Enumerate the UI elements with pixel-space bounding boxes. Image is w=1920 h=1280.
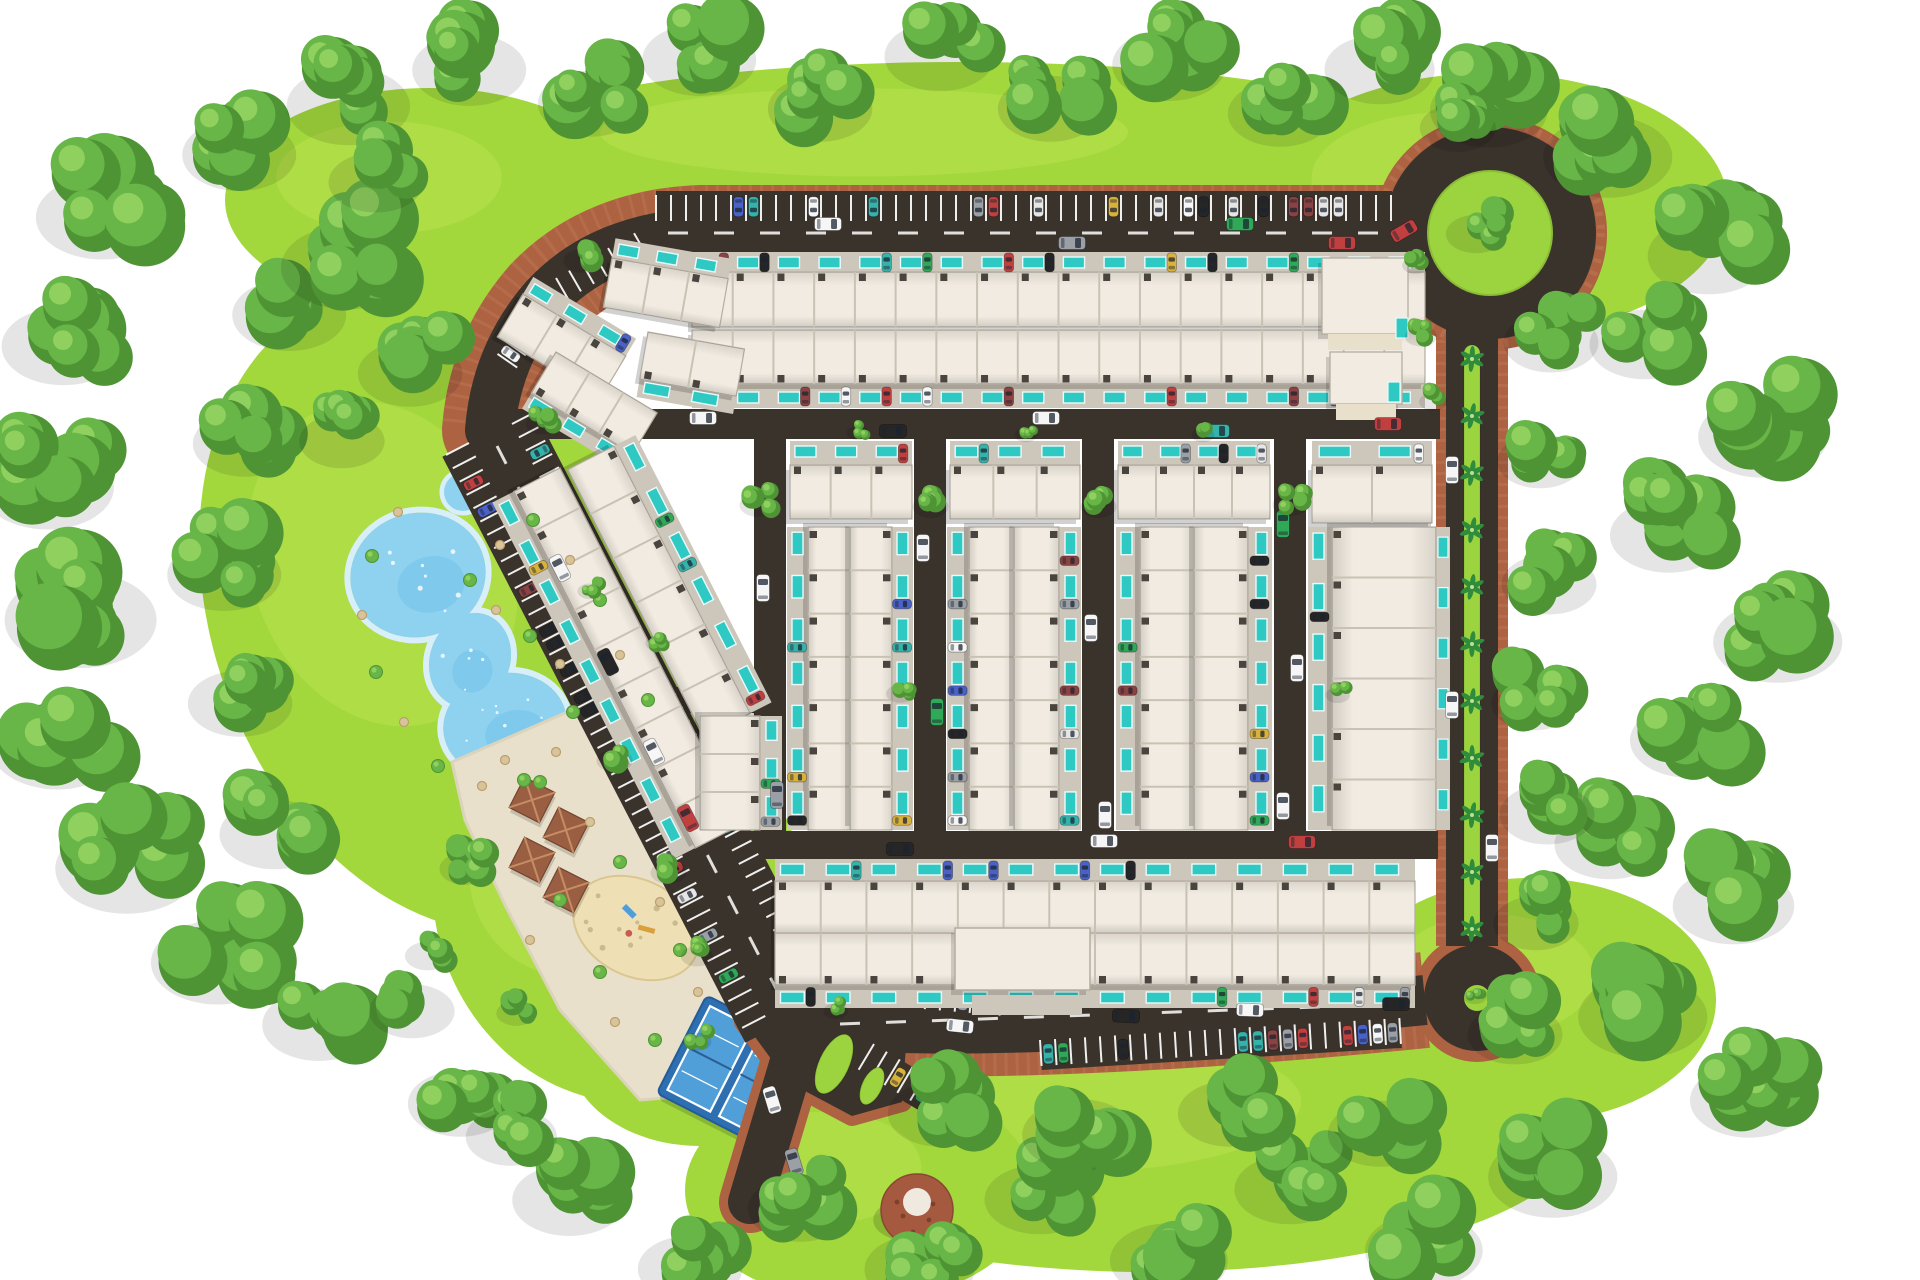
bush bbox=[527, 514, 540, 527]
car bbox=[771, 782, 784, 809]
sun-umbrella bbox=[492, 606, 501, 615]
sun-umbrella bbox=[556, 660, 565, 669]
bush bbox=[432, 760, 445, 773]
windshield bbox=[1320, 208, 1327, 212]
entry-court bbox=[810, 791, 818, 798]
water-sparkle bbox=[391, 561, 395, 565]
entry-court bbox=[692, 274, 700, 283]
windshield bbox=[1402, 992, 1409, 996]
bush-highlight bbox=[371, 667, 376, 672]
car bbox=[1250, 816, 1269, 826]
windshield bbox=[1356, 992, 1363, 996]
entry-court bbox=[1145, 883, 1152, 891]
water-sparkle bbox=[468, 657, 471, 660]
car bbox=[757, 575, 770, 602]
windshield bbox=[843, 391, 850, 395]
entry-court bbox=[810, 661, 818, 668]
entry-court bbox=[1008, 883, 1015, 891]
car bbox=[1375, 418, 1402, 431]
car bbox=[1289, 197, 1299, 217]
water-sparkle bbox=[496, 711, 499, 714]
house-row bbox=[947, 523, 1014, 830]
windshield bbox=[772, 786, 782, 792]
car bbox=[761, 817, 780, 827]
sun-umbrella bbox=[694, 988, 703, 997]
entry-court bbox=[810, 704, 818, 711]
windshield bbox=[1260, 731, 1264, 738]
bush-highlight bbox=[465, 575, 470, 580]
pool bbox=[1055, 864, 1079, 875]
water-sparkle bbox=[464, 689, 466, 691]
pool bbox=[1256, 619, 1267, 642]
pool bbox=[952, 792, 963, 815]
car bbox=[1033, 412, 1060, 425]
entry-court bbox=[1236, 467, 1243, 475]
pool bbox=[766, 721, 777, 741]
windshield bbox=[945, 865, 952, 869]
windshield bbox=[1070, 687, 1074, 694]
windshield bbox=[990, 208, 997, 212]
entry-court bbox=[1103, 375, 1110, 383]
car bbox=[690, 412, 717, 425]
entry-court bbox=[1142, 574, 1150, 581]
pool bbox=[952, 619, 963, 642]
bush-highlight bbox=[555, 895, 560, 900]
car bbox=[1085, 615, 1098, 642]
entry-court bbox=[1334, 531, 1342, 538]
car bbox=[1289, 387, 1299, 406]
pool bbox=[900, 392, 921, 403]
entry-court bbox=[1328, 883, 1335, 891]
car bbox=[1297, 1028, 1308, 1049]
entry-court bbox=[883, 791, 891, 798]
entry-court bbox=[692, 380, 700, 389]
car bbox=[931, 699, 944, 726]
entry-court bbox=[1142, 791, 1150, 798]
entry-court bbox=[1334, 582, 1342, 589]
car bbox=[893, 599, 912, 609]
pool bbox=[952, 749, 963, 772]
masterplan-svg bbox=[0, 0, 1920, 1280]
entry-court bbox=[1099, 883, 1106, 891]
windshield bbox=[1045, 1048, 1052, 1053]
car bbox=[880, 425, 907, 438]
entry-court bbox=[810, 618, 818, 625]
bush bbox=[567, 706, 580, 719]
entry-court bbox=[1282, 976, 1289, 984]
water-sparkle bbox=[421, 564, 424, 567]
sun-umbrella bbox=[586, 818, 595, 827]
bush bbox=[370, 666, 383, 679]
entry-court bbox=[900, 375, 907, 383]
pool bbox=[860, 392, 881, 403]
windshield bbox=[1086, 619, 1096, 625]
windshield bbox=[981, 448, 988, 452]
windshield bbox=[883, 257, 890, 261]
sun-umbrella bbox=[496, 541, 505, 550]
windshield bbox=[1127, 865, 1134, 869]
water-sparkle bbox=[451, 549, 456, 554]
entry-court bbox=[751, 796, 759, 803]
car bbox=[1181, 444, 1191, 463]
bush bbox=[554, 894, 567, 907]
car bbox=[1099, 802, 1112, 829]
entry-court bbox=[1022, 375, 1029, 383]
pool bbox=[1313, 584, 1324, 610]
windshield bbox=[1209, 257, 1216, 261]
pool bbox=[952, 532, 963, 555]
windshield bbox=[958, 774, 962, 781]
pool bbox=[941, 392, 962, 403]
car bbox=[1199, 197, 1209, 217]
car bbox=[1291, 655, 1304, 682]
entry-court bbox=[1307, 375, 1314, 383]
entry-court bbox=[810, 574, 818, 581]
entry-court bbox=[825, 976, 832, 984]
entry-court bbox=[1142, 618, 1150, 625]
pool bbox=[780, 864, 804, 875]
windshield bbox=[1110, 208, 1117, 212]
pool bbox=[897, 705, 908, 728]
car bbox=[893, 643, 912, 653]
entry-court bbox=[1239, 704, 1247, 711]
windshield bbox=[958, 817, 962, 824]
entry-court bbox=[1050, 704, 1058, 711]
pool bbox=[792, 792, 803, 815]
car bbox=[815, 218, 842, 231]
bush bbox=[524, 630, 537, 643]
windshield bbox=[1107, 836, 1113, 846]
entry-court bbox=[1041, 467, 1048, 475]
water-sparkle bbox=[465, 739, 467, 741]
pool bbox=[1329, 864, 1353, 875]
pool bbox=[1319, 446, 1350, 457]
pool bbox=[1104, 257, 1125, 268]
pool bbox=[738, 257, 759, 268]
car bbox=[1329, 237, 1356, 250]
windshield bbox=[903, 817, 907, 824]
windshield bbox=[1243, 219, 1249, 229]
pool bbox=[1063, 392, 1084, 403]
car bbox=[1309, 987, 1319, 1006]
entry-court bbox=[916, 883, 923, 891]
pool bbox=[872, 992, 896, 1003]
car bbox=[989, 861, 999, 880]
sun-umbrella bbox=[478, 782, 487, 791]
entry-court bbox=[1050, 791, 1058, 798]
pool bbox=[1065, 619, 1076, 642]
pool bbox=[1121, 705, 1132, 728]
windshield bbox=[1447, 461, 1457, 467]
pool bbox=[1065, 575, 1076, 598]
pool bbox=[1023, 257, 1044, 268]
pool bbox=[876, 446, 897, 457]
house-row bbox=[786, 441, 912, 524]
pool bbox=[900, 257, 921, 268]
pool bbox=[792, 662, 803, 685]
pool bbox=[982, 392, 1003, 403]
car bbox=[806, 987, 816, 1006]
entry-court bbox=[883, 661, 891, 668]
car bbox=[1414, 444, 1424, 463]
pool bbox=[1192, 864, 1216, 875]
car bbox=[1118, 1039, 1129, 1060]
entry-court bbox=[1063, 274, 1070, 282]
entry-court bbox=[1053, 883, 1060, 891]
pool bbox=[872, 864, 896, 875]
windshield bbox=[1219, 426, 1225, 436]
pool bbox=[860, 257, 881, 268]
windshield bbox=[1006, 257, 1013, 261]
pool bbox=[952, 705, 963, 728]
pool bbox=[766, 759, 777, 779]
sun-umbrella bbox=[501, 756, 510, 765]
car bbox=[946, 1018, 974, 1034]
entry-court bbox=[1236, 883, 1243, 891]
sun-umbrella bbox=[552, 748, 561, 757]
car bbox=[1217, 987, 1227, 1006]
entry-court bbox=[751, 758, 759, 765]
car bbox=[1060, 686, 1079, 696]
pool bbox=[1065, 749, 1076, 772]
entry-court bbox=[1103, 274, 1110, 282]
car bbox=[869, 197, 879, 217]
windshield bbox=[771, 818, 775, 825]
pool bbox=[1313, 533, 1324, 559]
pool bbox=[1256, 662, 1267, 685]
windshield bbox=[1447, 696, 1457, 702]
bush-highlight bbox=[367, 551, 372, 556]
entry-court bbox=[1160, 467, 1167, 475]
entry-court bbox=[751, 720, 759, 727]
windshield bbox=[1374, 1028, 1381, 1033]
entry-court bbox=[1190, 883, 1197, 891]
windshield bbox=[1260, 601, 1264, 608]
entry-court bbox=[883, 531, 891, 538]
car bbox=[948, 729, 967, 739]
entry-court bbox=[859, 274, 866, 282]
water-sparkle bbox=[481, 658, 484, 661]
pool bbox=[1238, 992, 1262, 1003]
house-row bbox=[1116, 523, 1194, 830]
entry-court bbox=[1328, 976, 1335, 984]
car bbox=[1060, 556, 1079, 566]
car bbox=[1250, 729, 1269, 739]
entry-court bbox=[1050, 531, 1058, 538]
car bbox=[1310, 612, 1329, 622]
pool bbox=[1226, 392, 1247, 403]
house-row bbox=[845, 523, 913, 830]
windshield bbox=[1155, 208, 1162, 212]
pool bbox=[792, 619, 803, 642]
car bbox=[1334, 197, 1344, 217]
windshield bbox=[1391, 419, 1397, 429]
windshield bbox=[1260, 817, 1264, 824]
car bbox=[1184, 197, 1194, 217]
windshield bbox=[1219, 992, 1226, 996]
windshield bbox=[807, 992, 814, 996]
water-sparkle bbox=[441, 654, 445, 658]
sun-umbrella bbox=[566, 556, 575, 565]
bush-highlight bbox=[615, 857, 620, 862]
pool bbox=[1226, 257, 1247, 268]
pool bbox=[1438, 638, 1448, 658]
car bbox=[1342, 1025, 1353, 1046]
pool bbox=[1042, 446, 1065, 457]
pool bbox=[1121, 619, 1132, 642]
windshield bbox=[1119, 1044, 1126, 1049]
bush-highlight bbox=[568, 707, 573, 712]
windshield bbox=[1344, 1030, 1351, 1035]
pool bbox=[1313, 685, 1324, 711]
entry-court bbox=[971, 618, 979, 625]
pool bbox=[1121, 662, 1132, 685]
entry-court bbox=[653, 267, 661, 276]
pool bbox=[826, 864, 850, 875]
windshield bbox=[1310, 992, 1317, 996]
pool bbox=[1121, 575, 1132, 598]
bush bbox=[614, 856, 627, 869]
water-sparkle bbox=[503, 724, 507, 728]
entry-court bbox=[1266, 375, 1273, 383]
car bbox=[1060, 816, 1079, 826]
pool bbox=[1308, 392, 1329, 403]
pool bbox=[1104, 392, 1125, 403]
sun-umbrella bbox=[400, 718, 409, 727]
pool bbox=[795, 446, 816, 457]
entry-court bbox=[875, 467, 882, 475]
entry-court bbox=[1142, 661, 1150, 668]
pool bbox=[819, 392, 840, 403]
entry-court bbox=[1185, 375, 1192, 383]
bush-highlight bbox=[535, 777, 540, 782]
pool bbox=[1256, 705, 1267, 728]
windshield bbox=[1299, 1033, 1306, 1038]
windshield bbox=[1258, 448, 1265, 452]
bush bbox=[518, 774, 531, 787]
clubhouse-forecourt bbox=[972, 995, 1082, 1015]
car bbox=[979, 444, 989, 463]
car bbox=[1154, 197, 1164, 217]
entry-court bbox=[883, 574, 891, 581]
pool bbox=[792, 532, 803, 555]
car bbox=[852, 861, 862, 880]
water-sparkle bbox=[444, 610, 447, 613]
house-row bbox=[1114, 441, 1270, 524]
windshield bbox=[958, 644, 962, 651]
entry-court bbox=[818, 375, 825, 383]
entry-court bbox=[870, 976, 877, 984]
pool bbox=[1065, 662, 1076, 685]
pool bbox=[897, 749, 908, 772]
entry-court bbox=[916, 976, 923, 984]
pool bbox=[1388, 382, 1400, 402]
car bbox=[1289, 253, 1299, 272]
car bbox=[1250, 772, 1269, 782]
pool bbox=[918, 992, 942, 1003]
car bbox=[734, 197, 744, 217]
pool bbox=[897, 662, 908, 685]
water-sparkle bbox=[540, 717, 542, 719]
pool bbox=[778, 392, 799, 403]
pool bbox=[1065, 792, 1076, 815]
windshield bbox=[1269, 1034, 1276, 1039]
windshield bbox=[706, 413, 712, 423]
car bbox=[1109, 197, 1119, 217]
car bbox=[788, 772, 807, 782]
car bbox=[1289, 836, 1316, 849]
car bbox=[1277, 793, 1290, 820]
entry-court bbox=[1373, 883, 1380, 891]
entry-court bbox=[835, 467, 842, 475]
windshield bbox=[1049, 413, 1055, 423]
car bbox=[1045, 253, 1055, 272]
car bbox=[1319, 197, 1329, 217]
water-sparkle bbox=[418, 586, 423, 591]
car bbox=[1004, 253, 1014, 272]
car bbox=[1043, 1044, 1054, 1065]
house-row bbox=[695, 712, 782, 830]
windshield bbox=[798, 817, 802, 824]
pool bbox=[999, 446, 1022, 457]
entry-court bbox=[1239, 618, 1247, 625]
water-sparkle bbox=[469, 648, 473, 652]
pool bbox=[1237, 446, 1257, 457]
windshield bbox=[1416, 448, 1423, 452]
entry-court bbox=[1099, 976, 1106, 984]
entry-court bbox=[1307, 274, 1314, 282]
car bbox=[1080, 861, 1090, 880]
windshield bbox=[1335, 208, 1342, 212]
car bbox=[882, 387, 892, 406]
car bbox=[1112, 1009, 1140, 1023]
house-row bbox=[787, 523, 850, 830]
car bbox=[749, 197, 759, 217]
parking-pad bbox=[656, 191, 1392, 221]
entry-court bbox=[1334, 784, 1342, 791]
car bbox=[948, 686, 967, 696]
pool bbox=[1329, 992, 1353, 1003]
windshield bbox=[1060, 1047, 1067, 1052]
villa bbox=[1322, 258, 1408, 334]
car bbox=[1282, 1029, 1293, 1050]
pool bbox=[1238, 864, 1262, 875]
windshield bbox=[990, 865, 997, 869]
car bbox=[760, 253, 770, 272]
bush bbox=[594, 966, 607, 979]
windshield bbox=[958, 601, 962, 608]
windshield bbox=[870, 208, 877, 212]
pool bbox=[1146, 864, 1170, 875]
bush-highlight bbox=[433, 761, 438, 766]
entry-court bbox=[940, 375, 947, 383]
entry-court bbox=[870, 883, 877, 891]
car bbox=[898, 444, 908, 463]
entry-court bbox=[614, 260, 622, 269]
pool bbox=[1100, 864, 1124, 875]
entry-court bbox=[971, 574, 979, 581]
pool bbox=[1186, 257, 1207, 268]
car bbox=[1446, 692, 1459, 719]
entry-court bbox=[883, 747, 891, 754]
pool bbox=[1146, 992, 1170, 1003]
entry-court bbox=[777, 375, 784, 383]
entry-court bbox=[1282, 883, 1289, 891]
entry-court bbox=[1050, 747, 1058, 754]
windshield bbox=[883, 391, 890, 395]
car bbox=[800, 387, 810, 406]
windshield bbox=[975, 208, 982, 212]
